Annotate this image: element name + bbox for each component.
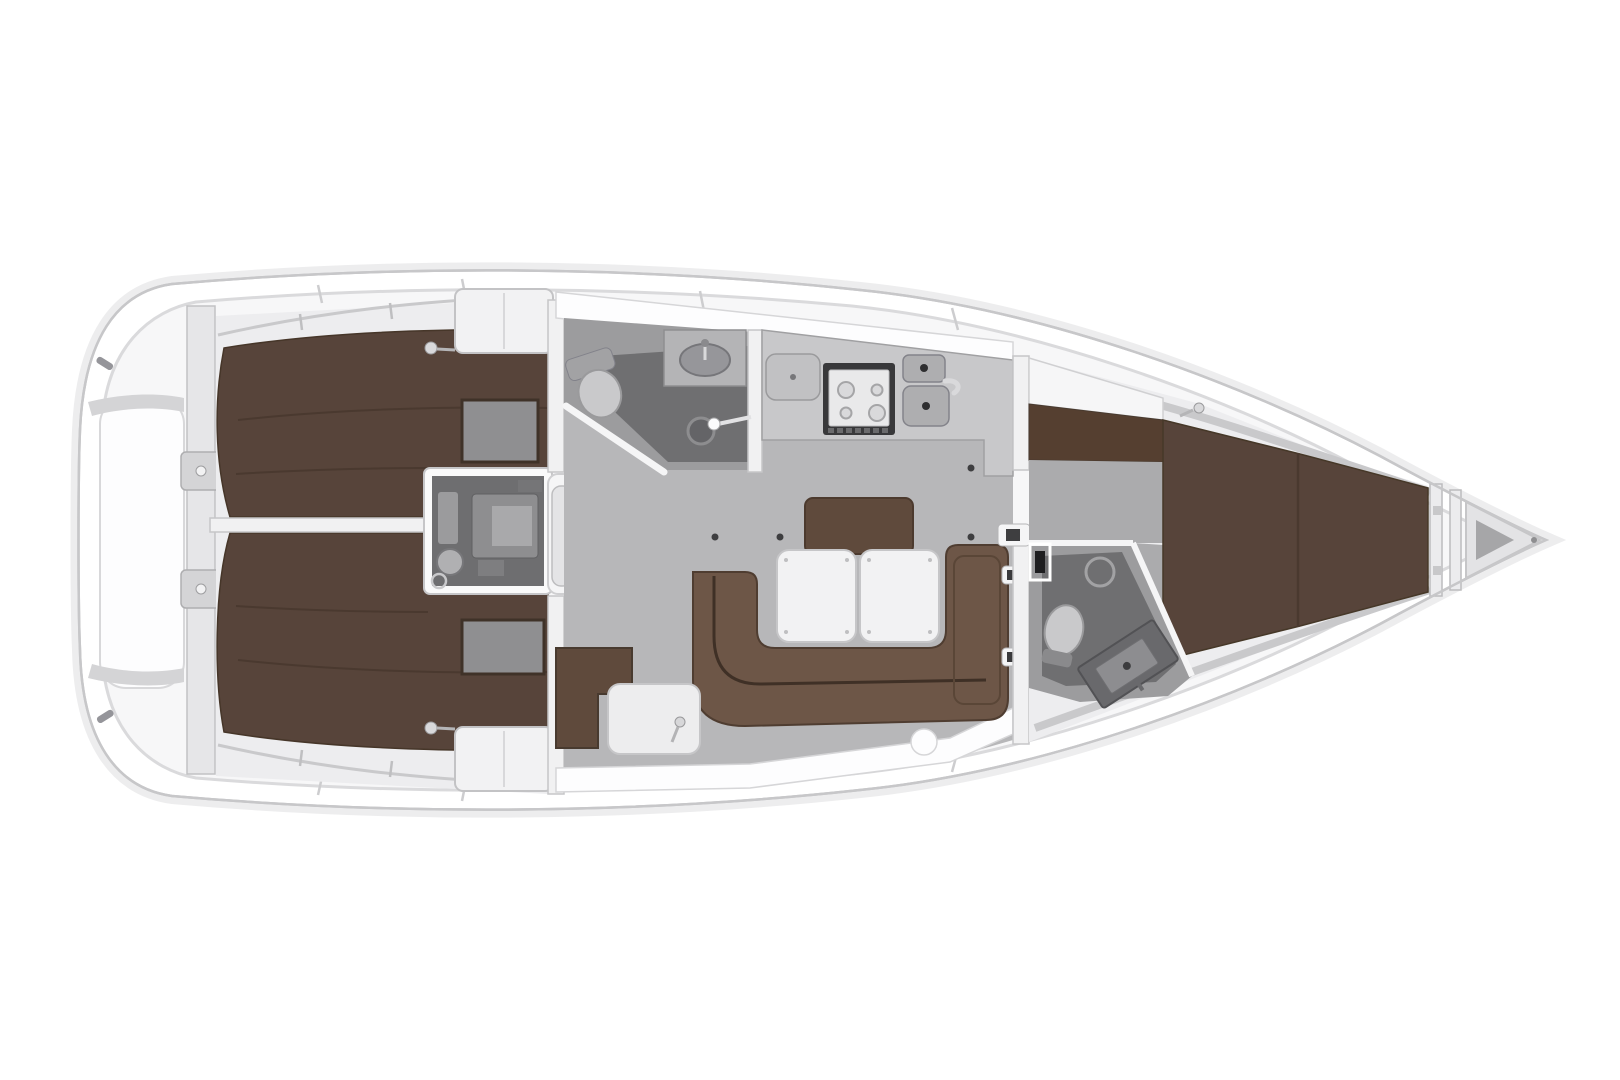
reading-light bbox=[1194, 403, 1204, 413]
yacht-floorplan-image bbox=[0, 0, 1620, 1080]
sink-drain bbox=[922, 402, 930, 410]
bow-fitting bbox=[1531, 537, 1537, 543]
engine-filter bbox=[437, 549, 463, 575]
side-shelf-inset bbox=[462, 620, 544, 674]
folding-table-left bbox=[777, 550, 856, 642]
engine-manifold bbox=[438, 492, 458, 544]
head-door-frame-dark bbox=[1035, 551, 1045, 573]
fridge-lid-pull bbox=[790, 374, 796, 380]
vent bbox=[846, 428, 852, 433]
hatch-pull bbox=[712, 534, 719, 541]
fitting bbox=[784, 558, 788, 562]
reading-light-arm bbox=[437, 349, 455, 350]
cabin-door-latch-plate bbox=[1006, 529, 1020, 541]
vent bbox=[882, 428, 888, 433]
fitting bbox=[845, 630, 849, 634]
fitting bbox=[784, 630, 788, 634]
vent bbox=[873, 428, 879, 433]
engine-block-top bbox=[492, 506, 532, 546]
reading-light-arm bbox=[437, 728, 455, 729]
engine-mount bbox=[478, 560, 504, 576]
berth-foot-wall bbox=[1430, 484, 1442, 596]
basin-faucet-head bbox=[701, 339, 709, 347]
bulkhead-wall-upper bbox=[548, 300, 564, 472]
bulkhead-wall-upper bbox=[1013, 356, 1029, 470]
hatch-pull bbox=[968, 465, 975, 472]
burner bbox=[872, 385, 883, 396]
burner bbox=[838, 382, 854, 398]
floorplan-svg bbox=[0, 0, 1620, 1080]
head-partition-wall bbox=[748, 330, 762, 472]
hatch-pull bbox=[777, 534, 784, 541]
hatch-pull bbox=[968, 534, 975, 541]
transom-knob-top bbox=[196, 466, 206, 476]
transom-knob-bottom bbox=[196, 584, 206, 594]
reading-light bbox=[425, 722, 437, 734]
burner bbox=[841, 408, 852, 419]
wall-fitting bbox=[1433, 566, 1442, 575]
fwd-cabin-floor bbox=[1029, 460, 1163, 543]
vent bbox=[837, 428, 843, 433]
folding-table-right bbox=[860, 550, 939, 642]
engine-pipe bbox=[518, 480, 542, 492]
fitting bbox=[928, 630, 932, 634]
burner bbox=[869, 405, 885, 421]
lazarette-panel bbox=[100, 398, 184, 688]
wall-fitting bbox=[1433, 506, 1442, 515]
fitting bbox=[867, 558, 871, 562]
salon-bench bbox=[805, 498, 913, 554]
shower-handle-knob bbox=[708, 418, 720, 430]
fitting bbox=[845, 558, 849, 562]
vent bbox=[855, 428, 861, 433]
grab-hook-knob bbox=[675, 717, 685, 727]
chart-table bbox=[608, 684, 700, 754]
reading-light bbox=[425, 342, 437, 354]
vent bbox=[828, 428, 834, 433]
engine-compartment bbox=[424, 468, 552, 594]
hatch-notch-bottom bbox=[911, 729, 937, 755]
sink-drain bbox=[920, 364, 928, 372]
stove-vents bbox=[828, 428, 888, 433]
transom-wall bbox=[187, 306, 215, 774]
vent bbox=[864, 428, 870, 433]
fitting bbox=[928, 558, 932, 562]
bulkhead-wall-lower bbox=[1013, 540, 1029, 744]
side-shelf-inset bbox=[462, 400, 538, 462]
chain-locker-wall bbox=[1450, 490, 1461, 590]
fitting bbox=[867, 630, 871, 634]
